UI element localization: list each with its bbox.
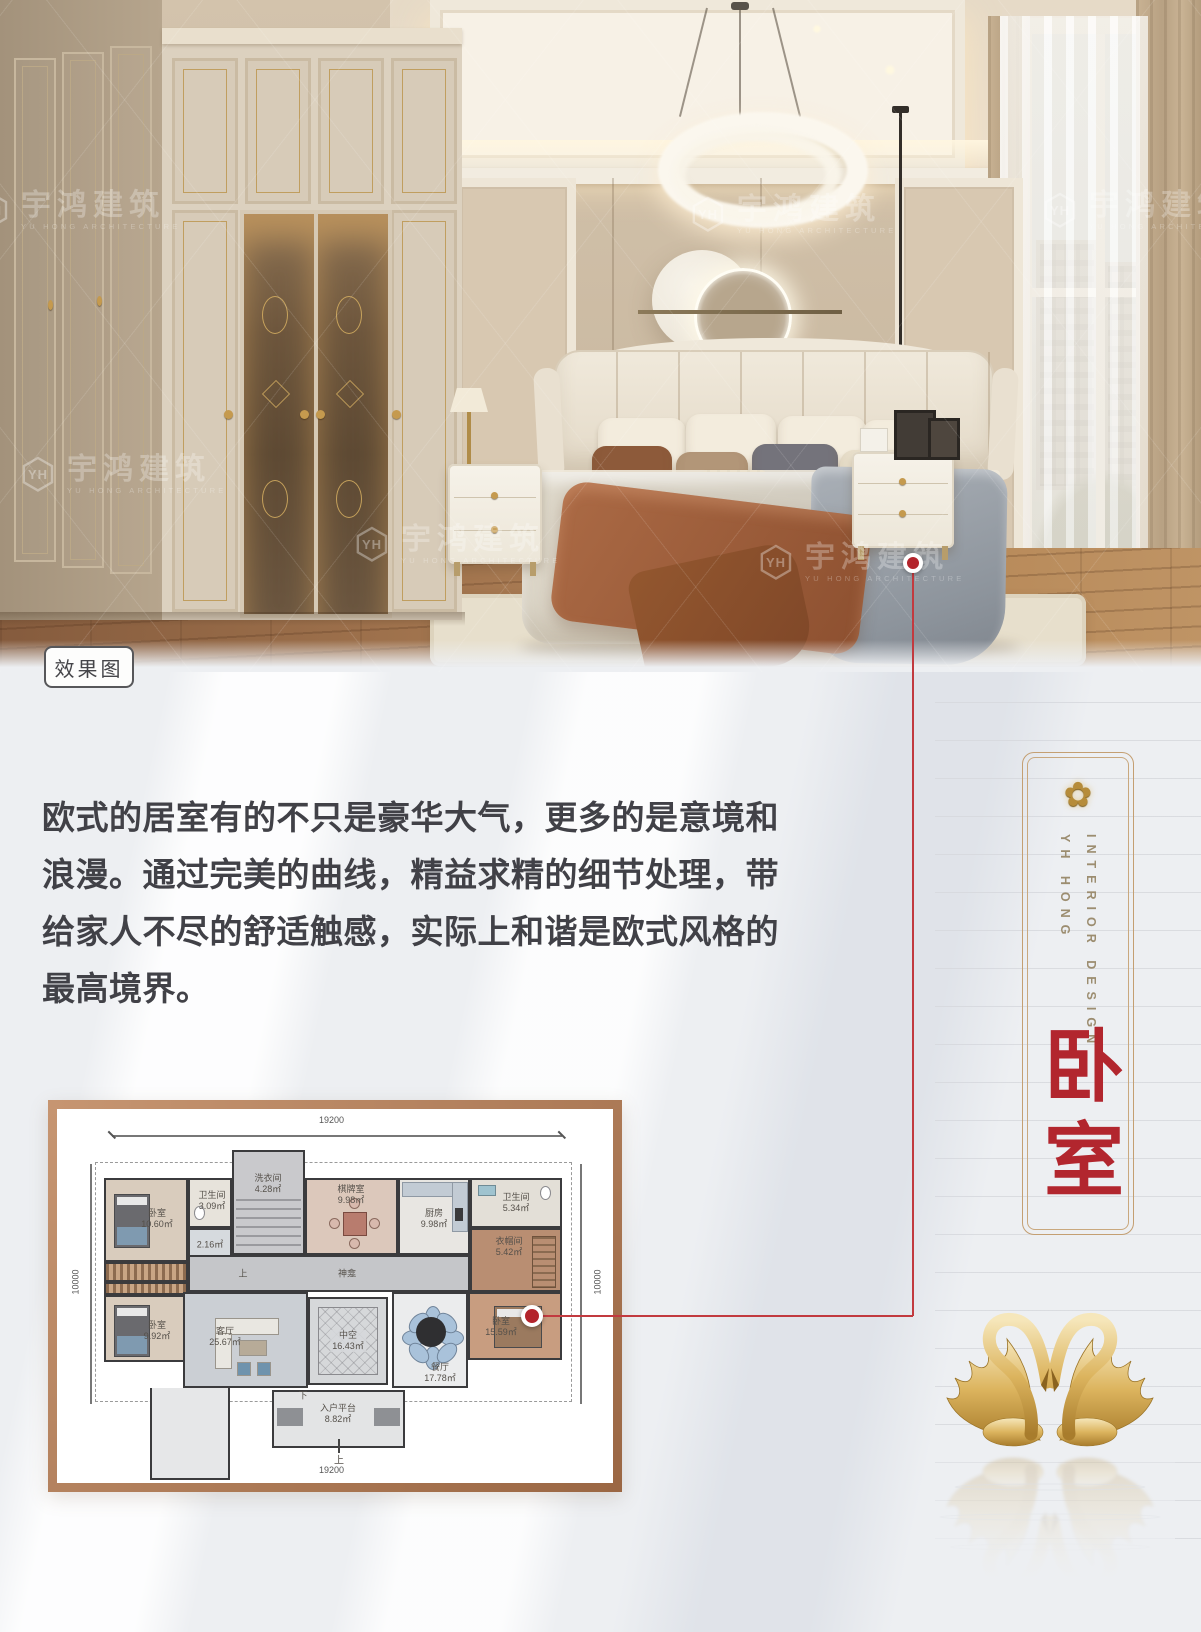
description-line: 给家人不尽的舒适触感，实际上和谐是欧式风格的 xyxy=(42,903,842,960)
watermark-logo-icon: ⬡YH xyxy=(756,540,796,584)
room-label-bath1: 卫生间3.09㎡ xyxy=(198,1190,225,1212)
stairs-icon xyxy=(236,1199,301,1251)
coffee-table-icon xyxy=(239,1340,267,1356)
watermark-grid xyxy=(0,0,1201,672)
floor-plan: 19200 19200 10000 10000 洗衣间4.28㎡ 卧室10.60… xyxy=(57,1109,613,1483)
golden-swans-decor xyxy=(925,1282,1175,1582)
plan-walkway xyxy=(150,1388,230,1480)
watermark-logo-icon: ⬡YH xyxy=(688,192,728,236)
watermark: ⬡YH 宇鸿建筑YU HONG ARCHITECTURE xyxy=(352,522,560,566)
room-label-bedroom1: 卧室10.60㎡ xyxy=(141,1208,173,1230)
room-label-master: 卧室15.59㎡ xyxy=(485,1316,517,1338)
dim-line-left xyxy=(90,1164,92,1404)
entry-arrow-line xyxy=(338,1439,340,1453)
dim-bottom: 19200 xyxy=(319,1465,344,1475)
stool-icon xyxy=(369,1218,380,1229)
room-label-closet: 衣帽间5.42㎡ xyxy=(495,1236,522,1258)
watermark-logo-icon: ⬡YH xyxy=(18,452,58,496)
room-label-kitchen: 厨房9.98㎡ xyxy=(421,1208,448,1230)
shrine-label: 神龛 xyxy=(338,1269,356,1280)
callout-dot-plan xyxy=(521,1305,543,1327)
room-label-living: 客厅25.67㎡ xyxy=(209,1326,241,1348)
corridor-up-label: 上 xyxy=(238,1269,247,1280)
description-line: 浪漫。通过完美的曲线，精益求精的细节处理，带 xyxy=(42,846,842,903)
watermark-text: 宇鸿建筑YU HONG ARCHITECTURE xyxy=(1089,190,1201,231)
room-label-atrium: 中空16.43㎡ xyxy=(330,1330,366,1352)
panel-english-text: YH HONG INTERIOR DESIGN xyxy=(1058,834,1098,1050)
room-label-platform: 入户平台8.82㎡ xyxy=(320,1403,356,1425)
panel-en-title: INTERIOR DESIGN xyxy=(1084,834,1098,1050)
poster-page: ⬡YH 宇鸿建筑YU HONG ARCHITECTURE ⬡YH 宇鸿建筑YU … xyxy=(0,0,1201,1632)
dim-right: 10000 xyxy=(593,1269,603,1294)
platform-step-block xyxy=(277,1408,303,1426)
balcony-hatch xyxy=(104,1282,188,1295)
watermark-text: 宇鸿建筑YU HONG ARCHITECTURE xyxy=(21,190,180,231)
room-label-bedroom2: 卧室9.92㎡ xyxy=(144,1320,171,1342)
watermark: ⬡YH 宇鸿建筑YU HONG ARCHITECTURE xyxy=(0,188,180,232)
callout-line-horizontal xyxy=(532,1315,913,1317)
closet-rack-icon xyxy=(532,1236,556,1288)
dim-line-right xyxy=(580,1164,582,1404)
sink-icon xyxy=(478,1185,496,1196)
photo-tag-label: 效果图 xyxy=(55,653,124,682)
watermark: ⬡YH 宇鸿建筑YU HONG ARCHITECTURE xyxy=(18,452,226,496)
watermark: ⬡YH 宇鸿建筑YU HONG ARCHITECTURE xyxy=(756,540,964,584)
dim-line-top xyxy=(112,1135,562,1137)
dining-table-icon xyxy=(416,1317,446,1347)
kitchen-counter-icon xyxy=(452,1182,468,1232)
platform-step-block xyxy=(374,1408,400,1426)
watermark-logo-icon: ⬡YH xyxy=(1040,188,1080,232)
entry-up-label: 上 xyxy=(334,1456,344,1467)
description-line: 欧式的居室有的不只是豪华大气，更多的是意境和 xyxy=(42,789,842,846)
armchair-icon xyxy=(257,1362,271,1376)
floor-plan-card: 19200 19200 10000 10000 洗衣间4.28㎡ 卧室10.60… xyxy=(48,1100,622,1492)
description-paragraph: 欧式的居室有的不只是豪华大气，更多的是意境和 浪漫。通过完美的曲线，精益求精的细… xyxy=(42,789,842,1017)
room-label-mahjong: 棋牌室9.98㎡ xyxy=(337,1184,364,1206)
callout-line-vertical xyxy=(912,563,914,1316)
watermark-logo-icon: ⬡YH xyxy=(0,188,12,232)
swans-svg xyxy=(925,1282,1175,1582)
room-label-laundry: 洗衣间4.28㎡ xyxy=(254,1173,281,1195)
callout-dot-photo xyxy=(903,553,923,573)
balcony-hatch xyxy=(104,1262,188,1282)
watermark-text: 宇鸿建筑YU HONG ARCHITECTURE xyxy=(805,542,964,583)
panel-en-subtitle: YH HONG xyxy=(1058,834,1072,1050)
mahjong-table-icon xyxy=(343,1212,367,1236)
plan-corridor xyxy=(188,1255,470,1292)
dim-left: 10000 xyxy=(71,1269,81,1294)
photo-tag: 效果图 xyxy=(44,646,134,688)
dim-top: 19200 xyxy=(319,1115,344,1125)
room-label-dining: 餐厅17.78㎡ xyxy=(424,1362,456,1384)
side-title-panel: ✿ YH HONG INTERIOR DESIGN 卧室 xyxy=(1022,752,1134,1235)
stool-icon xyxy=(329,1218,340,1229)
room-label-store: 2.16㎡ xyxy=(197,1240,224,1251)
room-label-bath2: 卫生间5.34㎡ xyxy=(502,1192,529,1214)
plan-room-stairs-laundry xyxy=(232,1150,305,1255)
down-label: 下 xyxy=(298,1391,307,1402)
watermark: ⬡YH 宇鸿建筑YU HONG ARCHITECTURE xyxy=(688,192,896,236)
bedroom-photo: ⬡YH 宇鸿建筑YU HONG ARCHITECTURE ⬡YH 宇鸿建筑YU … xyxy=(0,0,1201,672)
watermark: ⬡YH 宇鸿建筑YU HONG ARCHITECTURE xyxy=(1040,188,1201,232)
watermark-text: 宇鸿建筑YU HONG ARCHITECTURE xyxy=(67,454,226,495)
panel-title-bedroom: 卧室 xyxy=(1038,1024,1118,1212)
plan-room-living xyxy=(183,1292,308,1388)
watermark-text: 宇鸿建筑YU HONG ARCHITECTURE xyxy=(737,194,896,235)
gold-flower-icon: ✿ xyxy=(1064,778,1093,812)
armchair-icon xyxy=(237,1362,251,1376)
watermark-logo-icon: ⬡YH xyxy=(352,522,392,566)
stool-icon xyxy=(349,1238,360,1249)
toilet-icon xyxy=(540,1186,551,1200)
stove-icon xyxy=(455,1208,463,1221)
watermark-text: 宇鸿建筑YU HONG ARCHITECTURE xyxy=(401,524,560,565)
description-line: 最高境界。 xyxy=(42,960,842,1017)
